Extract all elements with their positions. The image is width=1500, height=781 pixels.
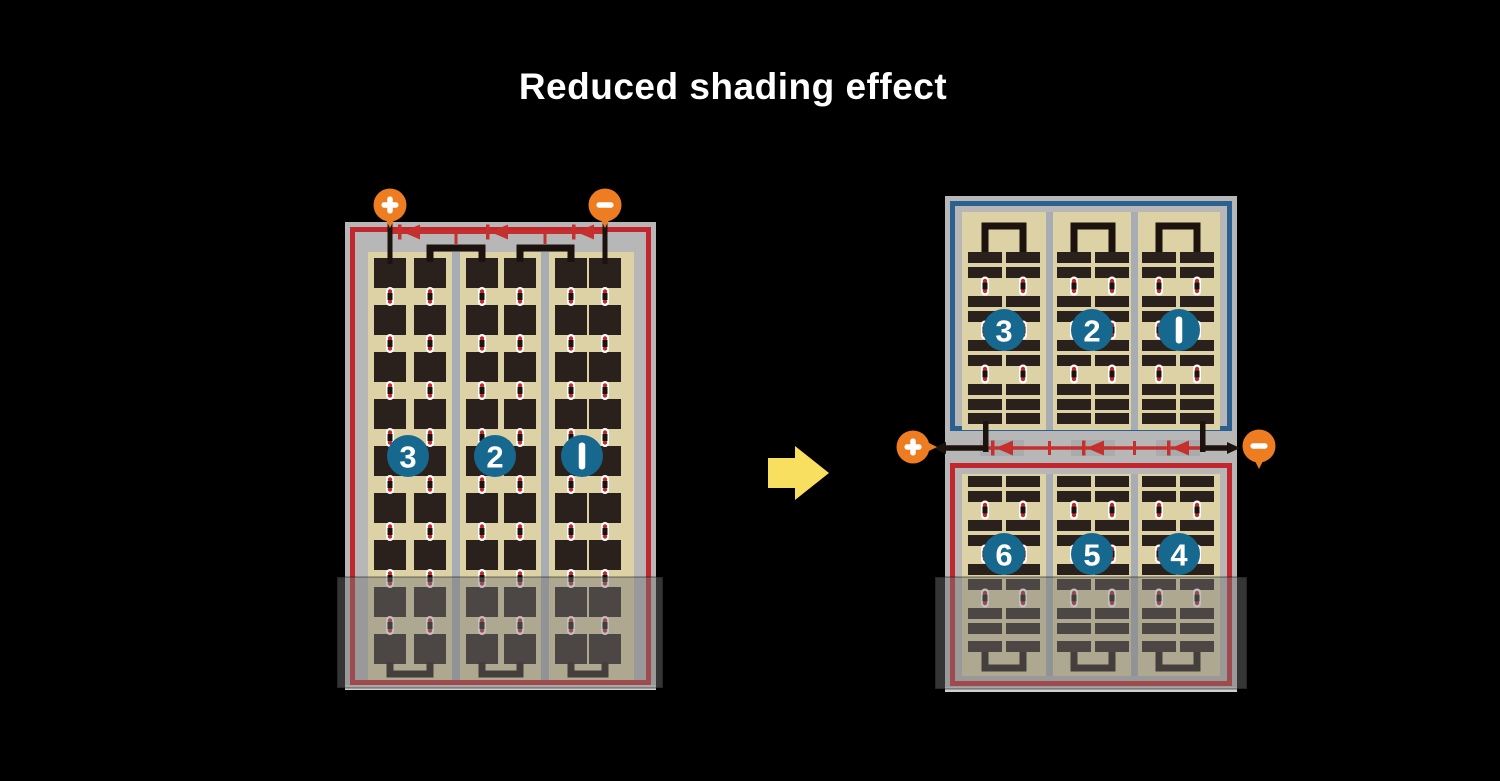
- solar-cell: [466, 305, 498, 335]
- solar-cell: [1095, 476, 1129, 487]
- solar-cell: [1006, 413, 1040, 424]
- solar-cell: [1006, 491, 1040, 502]
- solar-cell: [414, 399, 446, 429]
- solar-cell: [414, 352, 446, 382]
- string-number-badge: 1: [1158, 309, 1200, 351]
- string-number-text: 2: [1083, 314, 1100, 349]
- solar-cell: [1057, 413, 1091, 424]
- solar-cell: [374, 493, 406, 523]
- solar-cell: [504, 258, 536, 288]
- figure-canvas: Reduced shading effect +−321321+−654: [0, 0, 1500, 781]
- solar-cell: [466, 258, 498, 288]
- solar-cell: [1006, 267, 1040, 278]
- solar-cell: [589, 399, 621, 429]
- column-divider: [1131, 212, 1138, 430]
- solar-cell: [968, 384, 1002, 395]
- solar-cell: [1095, 491, 1129, 502]
- solar-cell: [968, 476, 1002, 487]
- solar-cell: [1180, 296, 1214, 307]
- solar-cell: [589, 493, 621, 523]
- solar-cell: [1095, 355, 1129, 366]
- solar-cell: [414, 540, 446, 570]
- solar-cell: [504, 305, 536, 335]
- solar-cell: [589, 352, 621, 382]
- solar-cell: [1142, 267, 1176, 278]
- solar-cell: [1142, 252, 1176, 263]
- solar-cell: [1095, 520, 1129, 531]
- string-number-badge: 5: [1071, 533, 1113, 575]
- solar-cell: [968, 252, 1002, 263]
- solar-cell: [555, 258, 587, 288]
- solar-cell: [1095, 267, 1129, 278]
- solar-cell: [1142, 399, 1176, 410]
- string-number-badge: 4: [1158, 533, 1200, 575]
- solar-cell: [1006, 399, 1040, 410]
- positive-terminal-icon: +: [897, 431, 938, 464]
- solar-cell: [1057, 399, 1091, 410]
- column-divider: [1046, 212, 1053, 430]
- string-number-badge: 3: [387, 435, 429, 477]
- solar-cell: [1180, 413, 1214, 424]
- solar-cell: [374, 399, 406, 429]
- solar-cell: [504, 399, 536, 429]
- solar-cell: [1057, 384, 1091, 395]
- solar-cell: [1180, 384, 1214, 395]
- solar-cell: [1180, 267, 1214, 278]
- solar-cell: [1057, 296, 1091, 307]
- solar-cell: [1006, 384, 1040, 395]
- solar-cell: [1180, 252, 1214, 263]
- string-number-badge: 2: [1071, 309, 1113, 351]
- solar-cell: [504, 352, 536, 382]
- solar-cell: [1095, 296, 1129, 307]
- solar-cell: [1142, 413, 1176, 424]
- shading-overlay-left: [337, 577, 663, 688]
- string-number-badge: 1: [561, 435, 603, 477]
- string-number-badge: 3: [983, 309, 1025, 351]
- solar-cell: [414, 305, 446, 335]
- solar-cell: [1006, 355, 1040, 366]
- string-number-text: 4: [1170, 538, 1188, 573]
- solar-cell: [1006, 476, 1040, 487]
- string-number-text: 6: [995, 538, 1012, 573]
- solar-cell: [968, 267, 1002, 278]
- solar-cell: [1142, 491, 1176, 502]
- string-number-text: 3: [399, 440, 416, 475]
- solar-cell: [968, 491, 1002, 502]
- solar-cell: [968, 399, 1002, 410]
- solar-cell: [589, 540, 621, 570]
- solar-cell: [1180, 520, 1214, 531]
- solar-cell: [555, 493, 587, 523]
- right-top-module: 321: [953, 204, 1230, 431]
- solar-cell: [1142, 384, 1176, 395]
- solar-cell: [414, 493, 446, 523]
- negative-terminal-icon: −: [1243, 430, 1276, 470]
- solar-cell: [1057, 252, 1091, 263]
- transform-arrow-icon: [768, 446, 829, 500]
- solar-cell: [1006, 296, 1040, 307]
- solar-cell: [1057, 476, 1091, 487]
- string-number-badge: 6: [983, 533, 1025, 575]
- solar-cell: [1180, 355, 1214, 366]
- solar-cell: [374, 352, 406, 382]
- solar-cell: [1095, 252, 1129, 263]
- solar-cell: [466, 352, 498, 382]
- solar-cell: [968, 520, 1002, 531]
- solar-cell: [1057, 491, 1091, 502]
- solar-cell: [968, 355, 1002, 366]
- solar-cell: [1006, 252, 1040, 263]
- solar-cell: [1057, 267, 1091, 278]
- string-number-badge: 2: [474, 435, 516, 477]
- solar-cell: [1180, 476, 1214, 487]
- solar-cell: [1057, 355, 1091, 366]
- solar-cell: [589, 305, 621, 335]
- solar-cell: [555, 540, 587, 570]
- solar-cell: [968, 296, 1002, 307]
- solar-cell: [466, 399, 498, 429]
- solar-cell: [555, 399, 587, 429]
- string-number-text: 3: [995, 314, 1012, 349]
- solar-cell: [1142, 476, 1176, 487]
- solar-cell: [414, 258, 446, 288]
- string-number-text: 2: [486, 440, 503, 475]
- solar-cell: [374, 540, 406, 570]
- solar-cell: [1057, 520, 1091, 531]
- solar-cell: [1142, 520, 1176, 531]
- shading-effect-diagram: +−321321+−654: [0, 0, 1500, 781]
- solar-cell: [1180, 399, 1214, 410]
- solar-cell: [504, 540, 536, 570]
- solar-cell: [1095, 399, 1129, 410]
- solar-cell: [1095, 384, 1129, 395]
- solar-cell: [555, 352, 587, 382]
- solar-cell: [1006, 520, 1040, 531]
- solar-cell: [1142, 355, 1176, 366]
- solar-cell: [1095, 413, 1129, 424]
- solar-cell: [1180, 491, 1214, 502]
- string-number-text: 5: [1083, 538, 1100, 573]
- solar-cell: [1142, 296, 1176, 307]
- solar-cell: [555, 305, 587, 335]
- solar-cell: [466, 540, 498, 570]
- solar-cell: [374, 305, 406, 335]
- solar-cell: [504, 493, 536, 523]
- shading-overlay-right: [935, 577, 1247, 689]
- solar-cell: [466, 493, 498, 523]
